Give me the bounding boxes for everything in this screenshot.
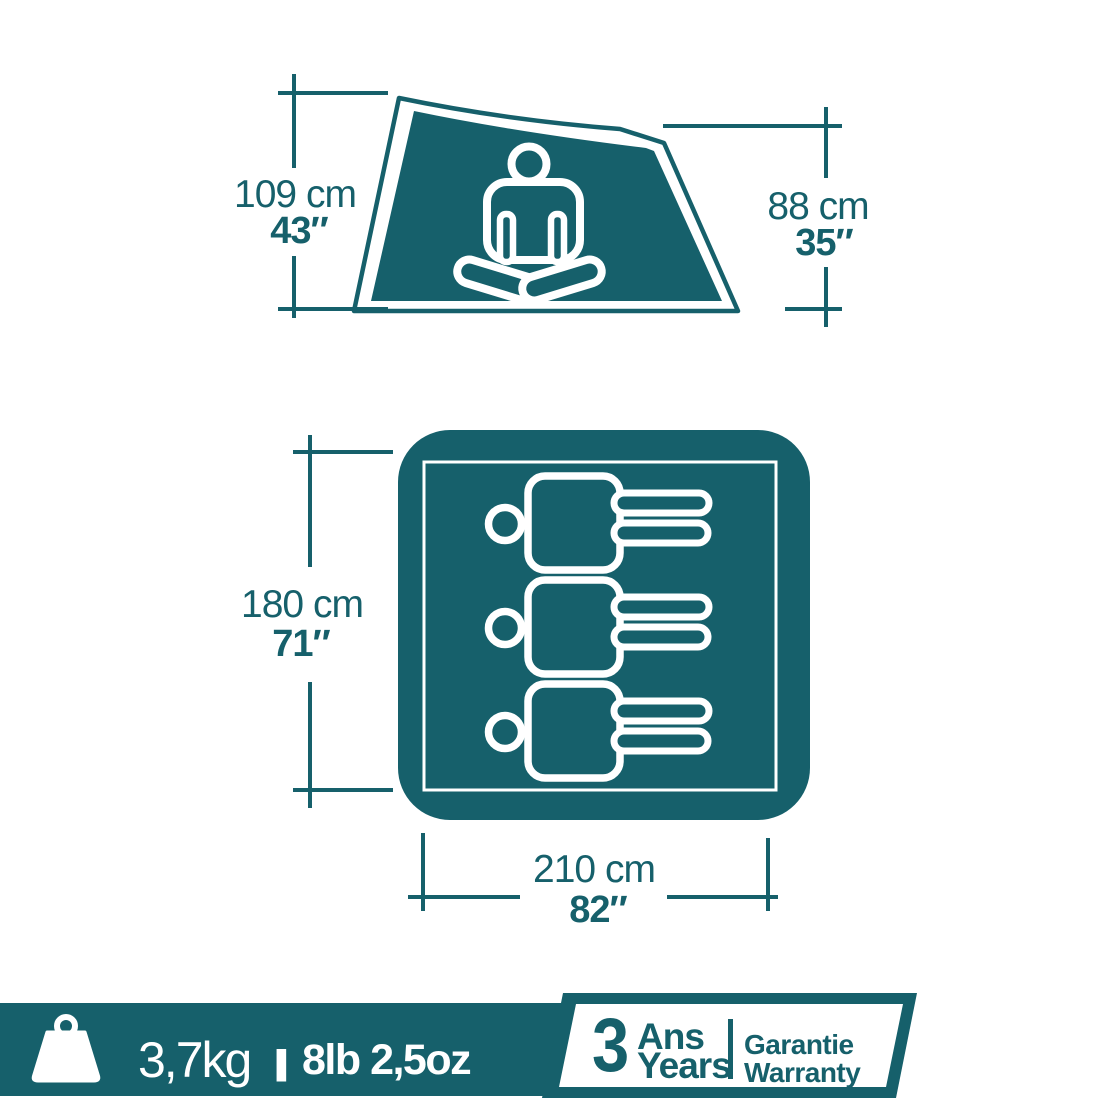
warranty-years-label-en: Years bbox=[637, 1049, 731, 1082]
floor-side-metric-label: 180 cm bbox=[202, 583, 402, 627]
tent-side-view bbox=[354, 98, 738, 311]
diagram-graphics bbox=[0, 0, 1100, 1100]
floor-side-imperial-label: 71″ bbox=[201, 623, 401, 666]
weight-imperial-label: 8lb 2,5oz bbox=[302, 1030, 470, 1090]
weight-metric-label: 3,7kg bbox=[138, 1030, 250, 1090]
tent-spec-sheet: 109 cm 43″ 88 cm 35″ 180 cm 71″ 210 cm 8… bbox=[0, 0, 1100, 1100]
warranty-guarantee-en: Warranty bbox=[744, 1059, 860, 1087]
floor-bottom-metric-label: 210 cm bbox=[494, 848, 694, 892]
floor-bottom-imperial-label: 82″ bbox=[498, 889, 698, 932]
height-left-imperial-label: 43″ bbox=[199, 210, 399, 253]
warranty-years-value: 3 bbox=[592, 1014, 629, 1078]
warranty-guarantee-fr: Garantie bbox=[744, 1031, 854, 1059]
weight-divider: | bbox=[271, 1044, 290, 1082]
height-right-imperial-label: 35″ bbox=[724, 222, 924, 265]
tent-floor-plan bbox=[398, 430, 810, 820]
